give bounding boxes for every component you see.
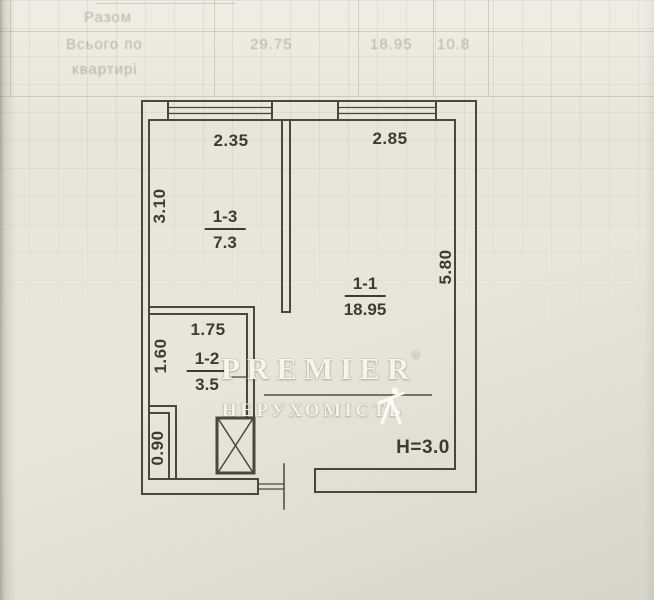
window-right [338, 101, 436, 120]
watermark-brand: PREMIER® [221, 351, 451, 387]
hall-top-wall [149, 307, 254, 314]
dim-left-height: 3.10 [150, 188, 170, 223]
dim-top-left-width: 2.35 [213, 131, 248, 151]
bottom-right-wall [315, 469, 476, 492]
dim-hall-width: 1.75 [190, 320, 225, 340]
room-number: 1-3 [205, 207, 246, 230]
interior-wall-1-3 [282, 120, 290, 312]
room-label-1-1: 1-1 18.95 [344, 274, 387, 320]
floorplan-drawing [0, 0, 654, 600]
exterior-right-wall [455, 101, 476, 492]
bottom-left-wall [142, 479, 258, 494]
floorplan-photo: Разом Всього по квартирі 29.75 18.95 10.… [0, 0, 654, 600]
dim-top-right-width: 2.85 [372, 129, 407, 149]
dim-right-height: 5.80 [436, 249, 456, 284]
atlas-figure-icon [376, 386, 408, 426]
exterior-top-wall [142, 101, 476, 120]
bottom-door-opening [258, 464, 284, 509]
registered-mark-icon: ® [411, 349, 419, 361]
shaft-box [217, 418, 254, 473]
room-area: 18.95 [344, 300, 387, 320]
dim-niche-height: 0.90 [148, 430, 168, 465]
window-left [168, 101, 272, 120]
ceiling-height-label: H=3.0 [396, 437, 450, 459]
room-area: 7.3 [205, 233, 246, 253]
watermark-brand-text: PREMIER [221, 351, 416, 386]
dim-hall-height: 1.60 [151, 338, 171, 373]
room-label-1-3: 1-3 7.3 [205, 207, 246, 253]
room-number: 1-1 [345, 274, 386, 297]
